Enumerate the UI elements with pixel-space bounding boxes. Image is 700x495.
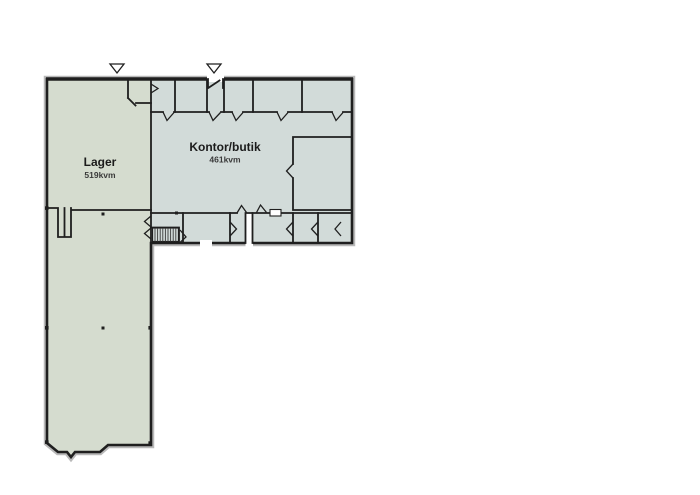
lager-area-value: 519kvm	[84, 170, 116, 180]
entrance-marker-icon	[207, 64, 221, 73]
floorplan-drawing: Lager 519kvm Kontor/butik 461kvm	[0, 0, 700, 495]
wall-opening-box	[270, 210, 281, 217]
entrance-markers	[110, 64, 221, 73]
floorplan-page: Lager 519kvm Kontor/butik 461kvm	[0, 0, 700, 495]
kontor-area-value: 461kvm	[209, 155, 241, 165]
corridor	[246, 213, 253, 243]
entrance-marker-icon	[110, 64, 124, 73]
lager-label: Lager	[84, 155, 117, 169]
lager-area	[48, 80, 151, 456]
kontor-label: Kontor/butik	[189, 140, 261, 154]
